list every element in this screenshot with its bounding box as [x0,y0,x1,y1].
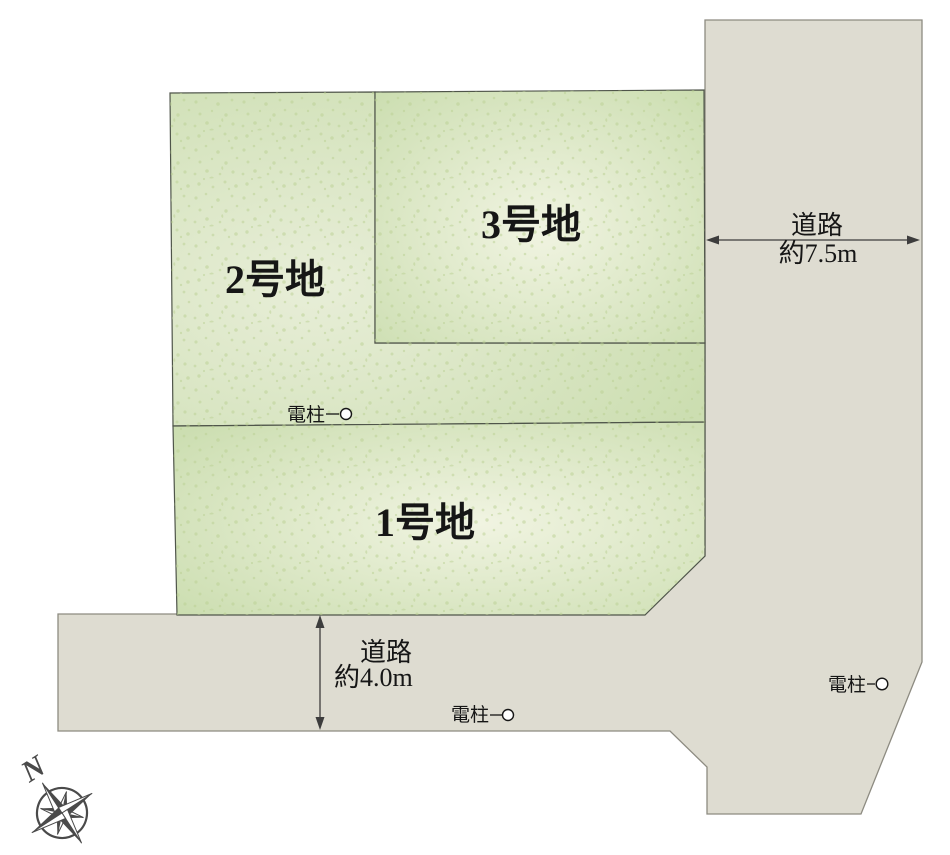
utility-pole-2-label: 電柱 [451,704,489,726]
compass-north-label: N [14,749,52,790]
plot-2-label: 2号地 [225,257,325,302]
utility-pole-2-circle [503,710,514,721]
road-bottom-width: 約4.0m [334,663,413,692]
utility-pole-3-circle [876,678,888,690]
compass-rose: N [0,736,112,855]
utility-pole-3-label: 電柱 [828,674,866,696]
utility-pole-1-circle [341,409,352,420]
plot-1-label: 1号地 [375,500,475,545]
road-right-name: 道路 [791,211,843,240]
plot-3-label: 3号地 [481,202,581,247]
site-plan-svg: 2号地 3号地 1号地 道路 約7.5m 道路 約4.0m 電柱 電柱 [0,0,950,855]
utility-pole-1-label: 電柱 [287,404,325,426]
road-right-width: 約7.5m [779,239,858,268]
site-plan-page: 2号地 3号地 1号地 道路 約7.5m 道路 約4.0m 電柱 電柱 [0,0,950,855]
